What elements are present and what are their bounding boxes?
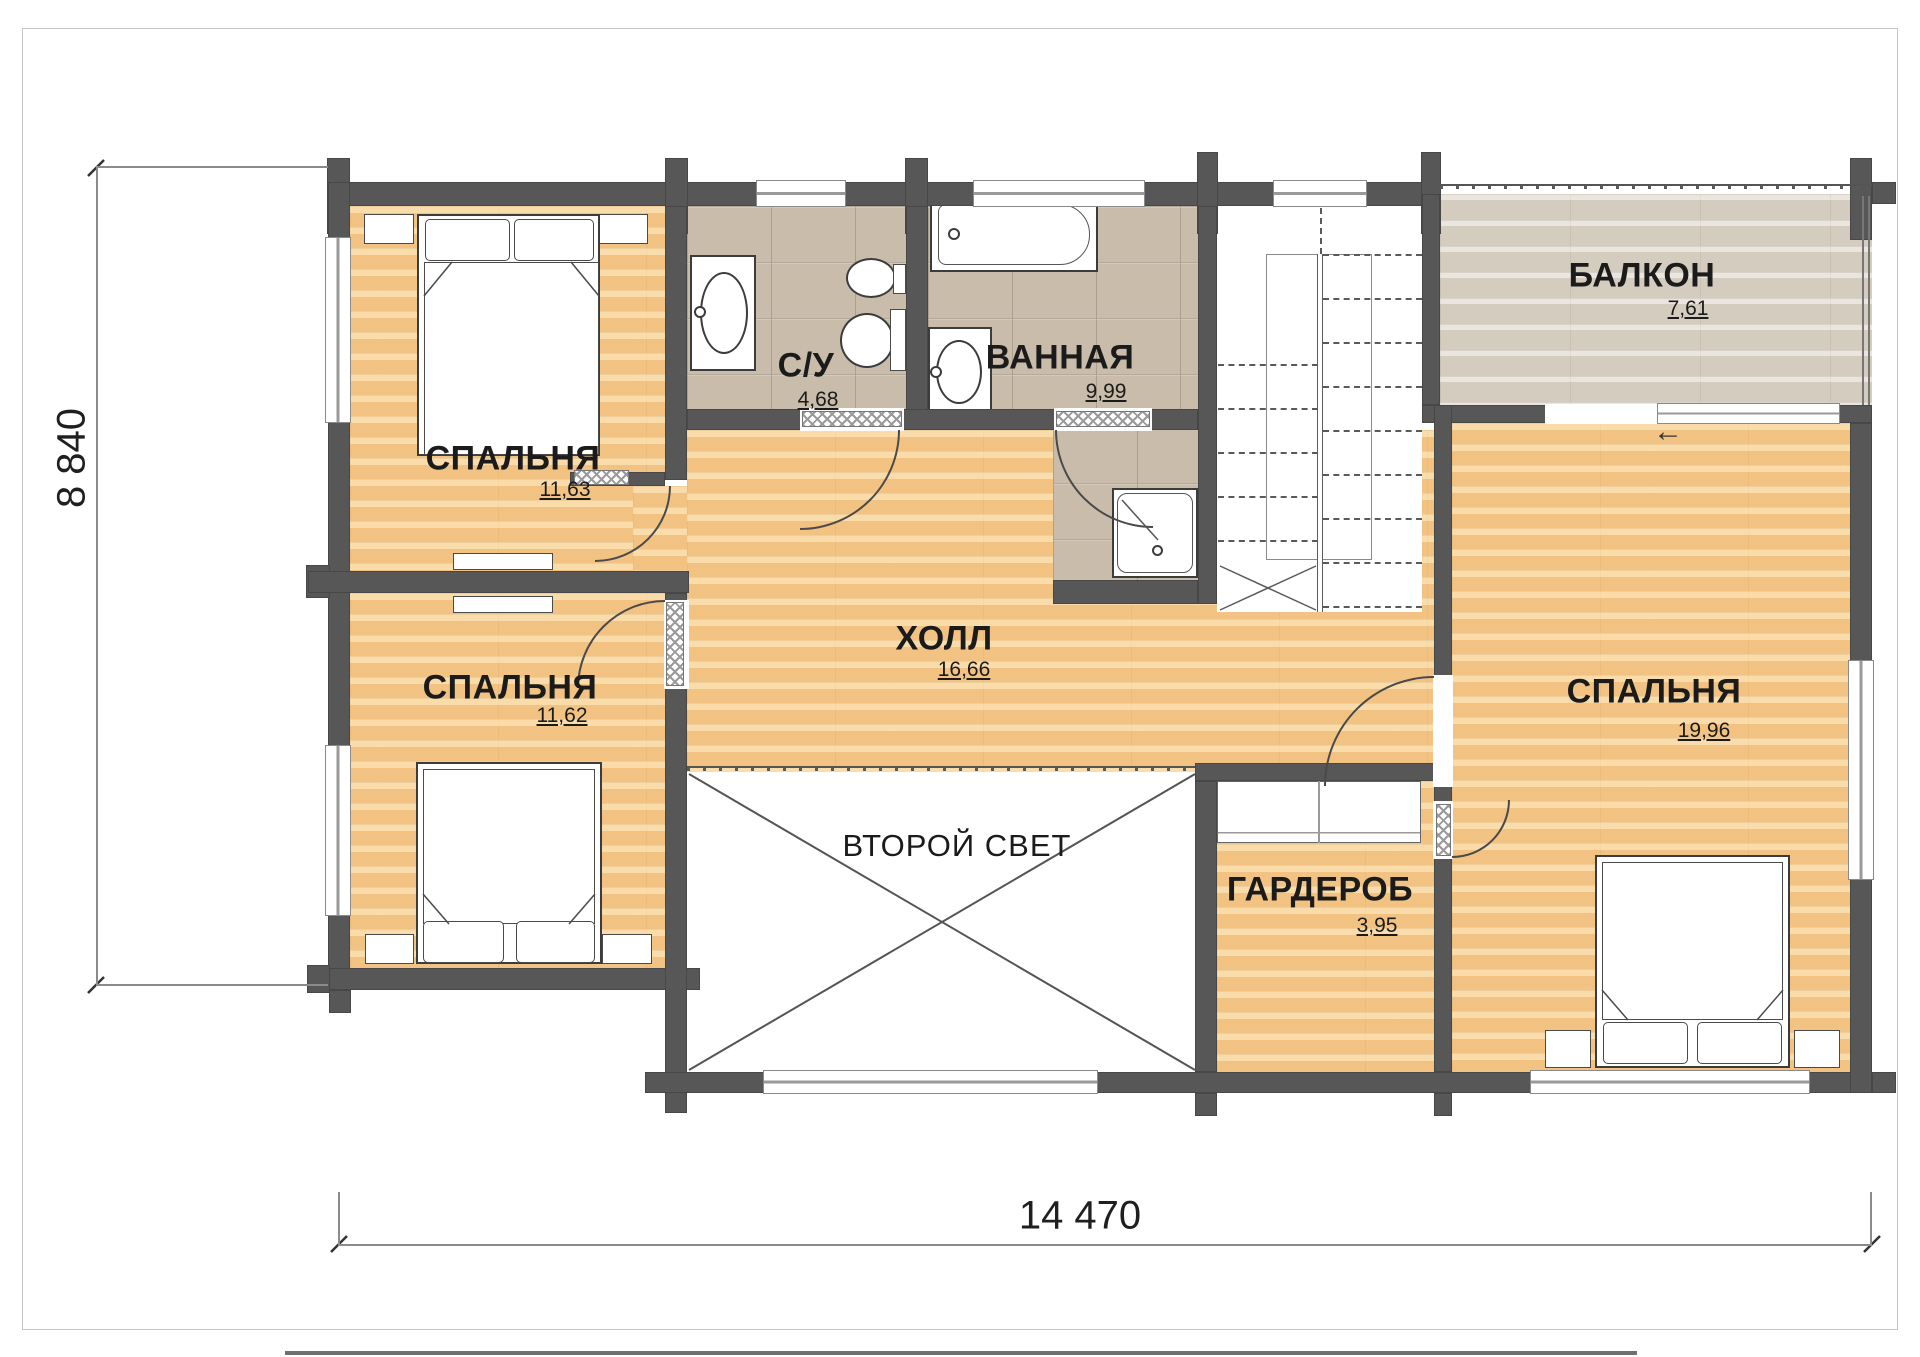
floor-plan: 8 840 14 470 СПАЛЬНЯ 11,63 СПАЛЬНЯ 11,62… [0,0,1920,1357]
room-label-hall: ХОЛЛ [895,620,992,659]
wall-wc-bath [906,206,928,430]
balcony-entry-arrow-icon: ← [1653,415,1683,449]
dimension-ext-left [338,1192,340,1246]
wardrobe-shelf-divider [1318,781,1320,843]
pillow [423,921,504,963]
nightstand [602,934,652,964]
stair-tread [1323,474,1422,476]
dimension-height: 8 840 [50,408,95,508]
dimension-line-bottom [339,1244,1872,1246]
nightstand [598,214,648,244]
bathtub-faucet [948,228,960,240]
wardrobe-door-threshold [1436,804,1451,856]
log-stub [1434,1093,1452,1116]
blanket [1602,862,1783,1020]
room-label-bathroom: ВАННАЯ [986,339,1135,378]
shower-drain [1152,545,1163,556]
log-stub [329,990,351,1013]
window-bedroom1-left [325,237,351,423]
room-label-wardrobe: ГАРДЕРОБ [1227,871,1413,910]
wall-between-bedrooms [308,571,689,593]
console-table [453,553,553,570]
void-railing [687,766,1195,771]
nightstand [364,214,414,244]
room-area-wc: 4,68 [798,388,839,412]
blanket [424,262,599,455]
nightstand [1545,1030,1591,1068]
stair-tread [1323,562,1422,564]
window-balcony-bottom [1657,403,1840,424]
blanket [423,769,595,924]
log-stub [1872,182,1896,204]
log-stub [1195,1093,1217,1116]
stair-tread [1323,606,1422,608]
room-area-balcony: 7,61 [1668,297,1709,321]
stair-tread [1218,540,1318,542]
window-void-bottom [763,1070,1098,1094]
toilet-bowl [840,313,894,368]
wall-nook-bottom [1053,580,1198,604]
toilet-tank [890,309,906,371]
console-table [453,596,553,613]
stair-tread [1323,430,1422,432]
bidet [846,258,896,298]
room-area-bedroom-3: 19,96 [1678,719,1731,743]
window-bedroom3-right [1848,660,1874,880]
stair-tread [1323,254,1422,256]
bath-sink-basin [936,340,982,404]
wc-sink-basin [700,272,748,354]
balcony-railing-top [1440,184,1872,189]
wall-wardrobe-left [1195,781,1217,1072]
wall-bedroom1-wc [665,206,687,480]
balcony-railing-right [1862,196,1870,405]
stair-tread [1218,452,1318,454]
dimension-ext-top [96,166,328,168]
room-label-bedroom-2: СПАЛЬНЯ [423,669,598,708]
wall-wardrobe-bedroom3 [1434,858,1452,1072]
room-label-bedroom-1: СПАЛЬНЯ [426,440,601,479]
bidet-tank [893,264,906,294]
balcony-door-opening [1545,404,1657,424]
stair-tread [1218,408,1318,410]
log-stub [1872,1072,1896,1093]
room-label-void: ВТОРОЙ СВЕТ [843,828,1072,864]
room-label-bedroom-3: СПАЛЬНЯ [1567,673,1742,712]
stairs-dashed-line [1320,208,1322,254]
wall-bottom-left [329,968,700,990]
stair-tread [1323,386,1422,388]
room-area-hall: 16,66 [938,658,991,682]
pillow [516,921,595,963]
log-stub [307,965,330,993]
room-area-bedroom-1: 11,63 [540,478,591,502]
nightstand [365,934,414,964]
room-label-balcony: БАЛКОН [1569,257,1716,296]
pillow [514,219,594,261]
window-bath-top [973,180,1145,207]
window-bedroom2-left [325,745,351,916]
window-stairs-top [1273,180,1367,207]
dimension-width: 14 470 [1019,1194,1141,1239]
bedroom3-door-opening [1433,675,1453,787]
bath-door-threshold [1056,411,1150,427]
room-area-bedroom-2: 11,62 [537,704,588,728]
dimension-ext-right [1870,1192,1872,1246]
wall-stairs-balcony [1422,194,1440,405]
bathtub-inner [938,204,1090,265]
sheet-bottom-edge [285,1351,1637,1355]
stair-tread [1323,518,1422,520]
nightstand [1794,1030,1840,1068]
bath-sink-faucet [930,366,942,378]
floor-balcony [1440,194,1872,405]
stair-tread [1218,496,1318,498]
wall-bath-stairs [1198,206,1217,604]
stair-tread [1323,342,1422,344]
dimension-line-left [96,168,98,986]
wall-hall-bedroom3 [1434,405,1452,676]
wc-door-threshold [802,411,902,427]
wc-sink-faucet [694,306,706,318]
stairs-stringer [1317,254,1323,612]
bedroom2-door-threshold [666,602,684,686]
stair-tread [1218,364,1318,366]
room-area-wardrobe: 3,95 [1357,914,1398,938]
window-wc-top [756,180,846,207]
pillow [1697,1022,1782,1064]
room-area-bathroom: 9,99 [1086,380,1127,404]
pillow [425,219,510,261]
pillow [1603,1022,1688,1064]
window-bedroom3-bottom [1530,1070,1810,1094]
room-label-wc: С/У [778,347,835,386]
dimension-ext-bottom [96,984,328,986]
stair-tread [1323,298,1422,300]
wall-hall-bedroom3 [1434,786,1452,802]
